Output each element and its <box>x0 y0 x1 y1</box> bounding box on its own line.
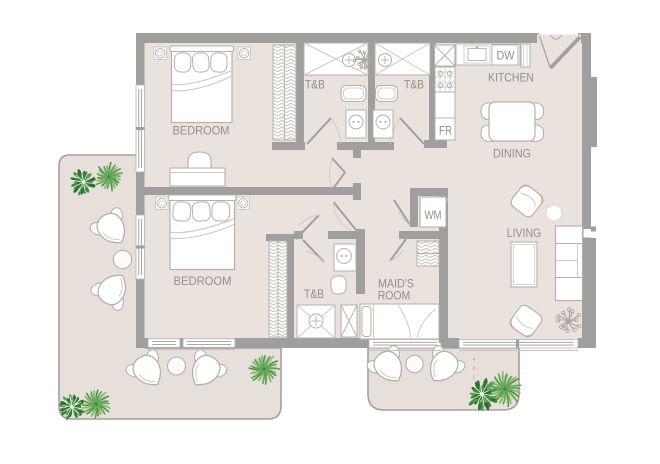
svg-text:T&B: T&B <box>304 289 324 301</box>
svg-text:KITCHEN: KITCHEN <box>488 71 534 85</box>
svg-text:DW: DW <box>497 51 515 63</box>
svg-text:8: 8 <box>473 366 476 372</box>
svg-text:BEDROOM: BEDROOM <box>173 124 230 138</box>
svg-text:LIVING: LIVING <box>507 226 542 240</box>
svg-text:T&B: T&B <box>305 80 325 92</box>
svg-text:DINING: DINING <box>493 147 531 161</box>
svg-text:WM: WM <box>425 210 442 222</box>
svg-text:5: 5 <box>473 375 476 381</box>
svg-text:FR: FR <box>439 126 452 138</box>
svg-text:BEDROOM: BEDROOM <box>174 274 232 288</box>
svg-text:4: 4 <box>473 357 476 363</box>
svg-text:T&B: T&B <box>404 80 424 92</box>
svg-text:ROOM: ROOM <box>378 289 411 303</box>
